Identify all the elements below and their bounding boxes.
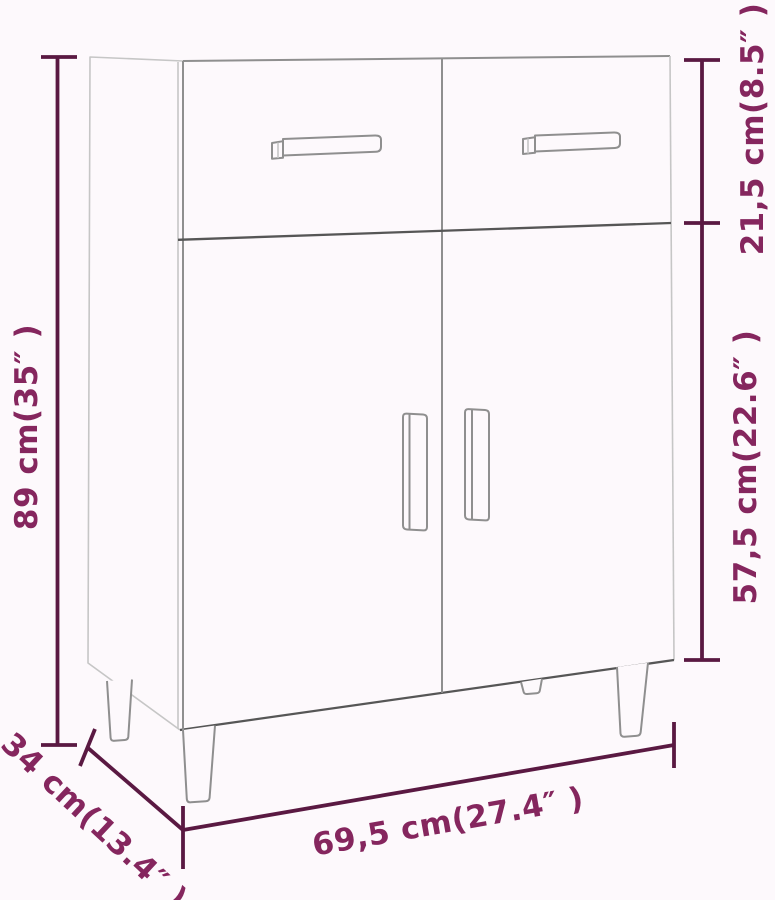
- height-label: 89 cm(35″ ): [9, 324, 45, 530]
- right-dimension-line: [684, 60, 720, 660]
- dimension-diagram: 89 cm(35″ ) 21,5 cm(8.5″ ) 57,5 cm(22.6″…: [0, 0, 775, 900]
- cabinet-line-art: [0, 0, 775, 900]
- cabinet-front-face: [178, 56, 674, 730]
- cabinet-legs: [107, 663, 648, 803]
- cabinet-bottom-edge: [180, 660, 674, 730]
- door-handle-right: [465, 409, 489, 520]
- cabinet-top-edge: [183, 56, 670, 61]
- leg-back-left: [107, 680, 132, 741]
- bottom-section-height-label: 57,5 cm(22.6″ ): [728, 330, 764, 605]
- drawer-handle-right: [523, 132, 620, 154]
- drawer-separator-line: [178, 223, 671, 240]
- top-section-height-label: 21,5 cm(8.5″ ): [735, 3, 771, 256]
- door-handle-left: [403, 414, 427, 531]
- leg-front-right: [617, 663, 648, 737]
- width-dimension-line: [183, 722, 674, 869]
- leg-front-left: [183, 726, 215, 803]
- height-dimension-line: [41, 57, 77, 745]
- cabinet-right-edge: [670, 56, 674, 660]
- drawer-handle-left: [272, 135, 381, 158]
- cabinet-side-panel: [88, 57, 183, 730]
